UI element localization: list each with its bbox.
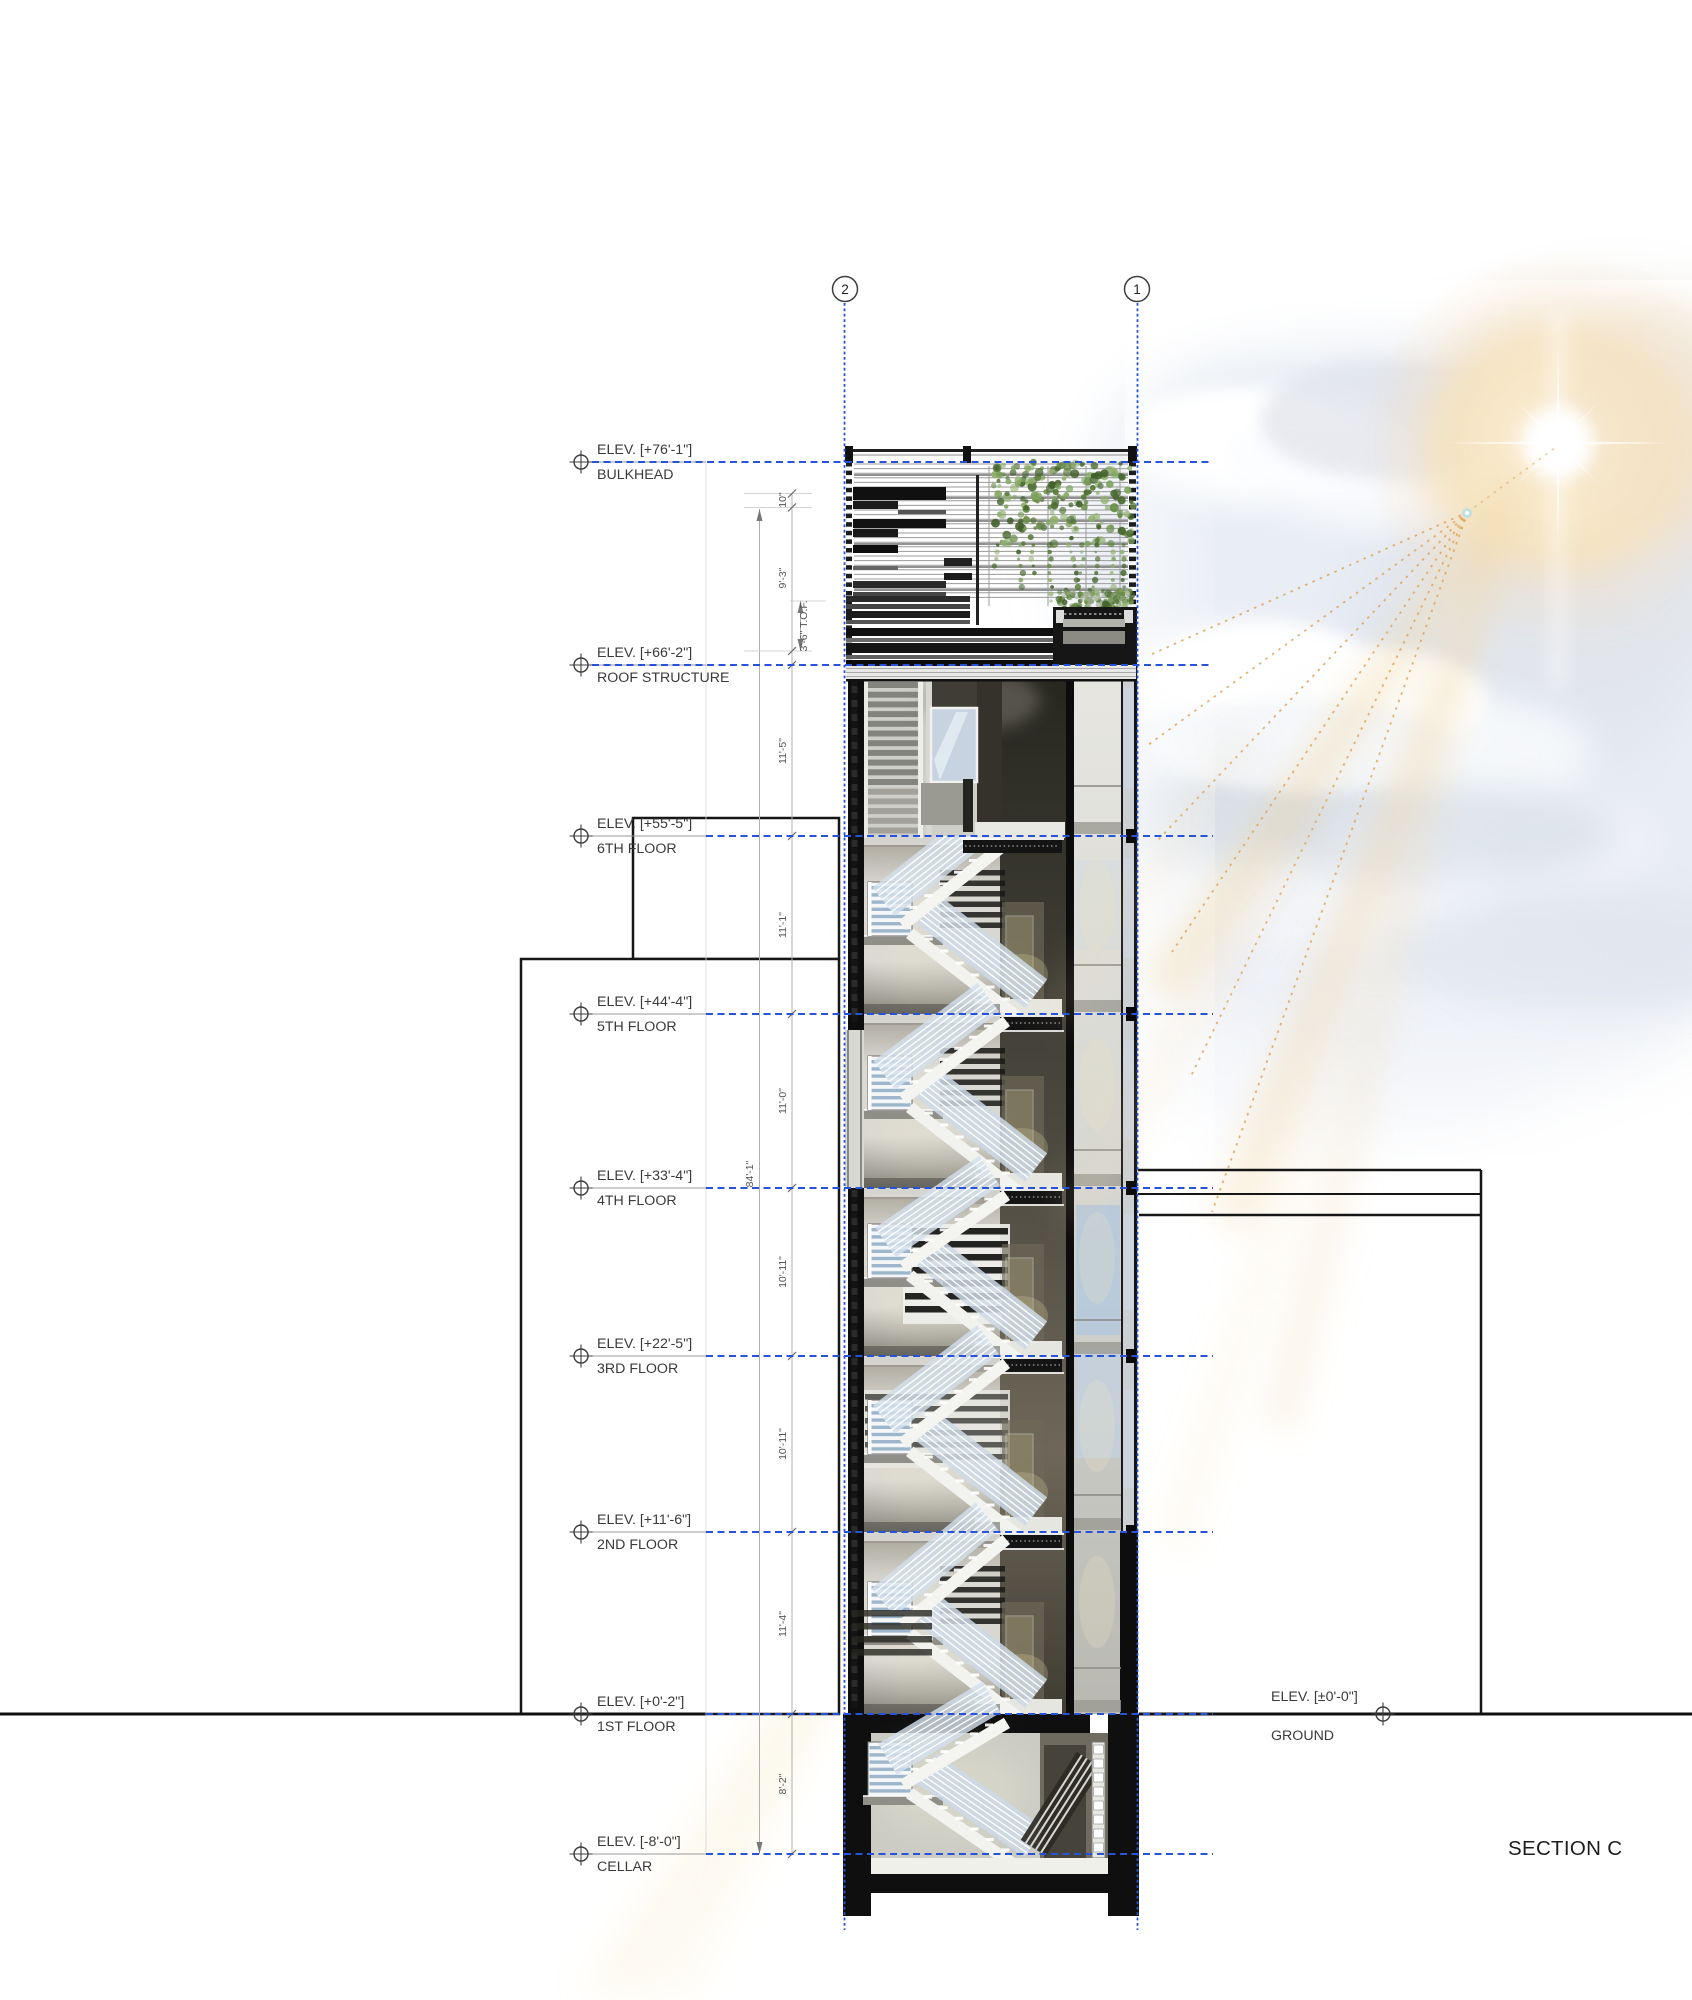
- svg-text:6TH FLOOR: 6TH FLOOR: [597, 841, 677, 857]
- svg-text:ELEV. [+76'-1"]: ELEV. [+76'-1"]: [597, 442, 692, 458]
- svg-text:ELEV. [+66'-2"]: ELEV. [+66'-2"]: [597, 645, 692, 661]
- svg-text:9'-3": 9'-3": [777, 567, 789, 588]
- svg-text:SECTION C: SECTION C: [1508, 1837, 1622, 1860]
- svg-text:11'-0": 11'-0": [777, 1088, 789, 1114]
- svg-text:ELEV. [+0'-2"]: ELEV. [+0'-2"]: [597, 1694, 684, 1710]
- svg-text:ELEV. [+44'-4"]: ELEV. [+44'-4"]: [597, 994, 692, 1010]
- svg-text:84'-1": 84'-1": [744, 1160, 756, 1187]
- svg-text:GROUND: GROUND: [1271, 1728, 1334, 1744]
- svg-text:ELEV. [±0'-0"]: ELEV. [±0'-0"]: [1271, 1689, 1358, 1705]
- svg-text:1: 1: [1133, 282, 1141, 297]
- svg-text:ROOF STRUCTURE: ROOF STRUCTURE: [597, 670, 729, 686]
- svg-text:11'-4": 11'-4": [777, 1611, 789, 1637]
- svg-text:2: 2: [841, 282, 849, 297]
- svg-text:8'-2": 8'-2": [777, 1773, 789, 1794]
- svg-text:CELLAR: CELLAR: [597, 1859, 652, 1875]
- svg-text:1ST FLOOR: 1ST FLOOR: [597, 1719, 676, 1735]
- svg-text:ELEV. [-8'-0"]: ELEV. [-8'-0"]: [597, 1834, 681, 1850]
- svg-text:10'-11": 10'-11": [777, 1428, 789, 1460]
- svg-text:3RD FLOOR: 3RD FLOOR: [597, 1361, 678, 1377]
- svg-text:2ND FLOOR: 2ND FLOOR: [597, 1537, 678, 1553]
- svg-text:ELEV. [+33'-4"]: ELEV. [+33'-4"]: [597, 1168, 692, 1184]
- svg-text:3'-6" T.O.F.: 3'-6" T.O.F.: [798, 600, 810, 651]
- svg-text:5TH FLOOR: 5TH FLOOR: [597, 1019, 677, 1035]
- svg-text:ELEV. [+22'-5"]: ELEV. [+22'-5"]: [597, 1336, 692, 1352]
- svg-text:ELEV. [+11'-6"]: ELEV. [+11'-6"]: [597, 1512, 691, 1528]
- svg-text:ELEV. [+55'-5"]: ELEV. [+55'-5"]: [597, 816, 692, 832]
- svg-text:11'-1": 11'-1": [777, 912, 789, 938]
- svg-text:4TH FLOOR: 4TH FLOOR: [597, 1193, 677, 1209]
- svg-text:10'-11": 10'-11": [777, 1256, 789, 1288]
- svg-text:11'-5": 11'-5": [777, 738, 789, 764]
- svg-text:BULKHEAD: BULKHEAD: [597, 467, 673, 483]
- svg-text:10": 10": [777, 492, 789, 508]
